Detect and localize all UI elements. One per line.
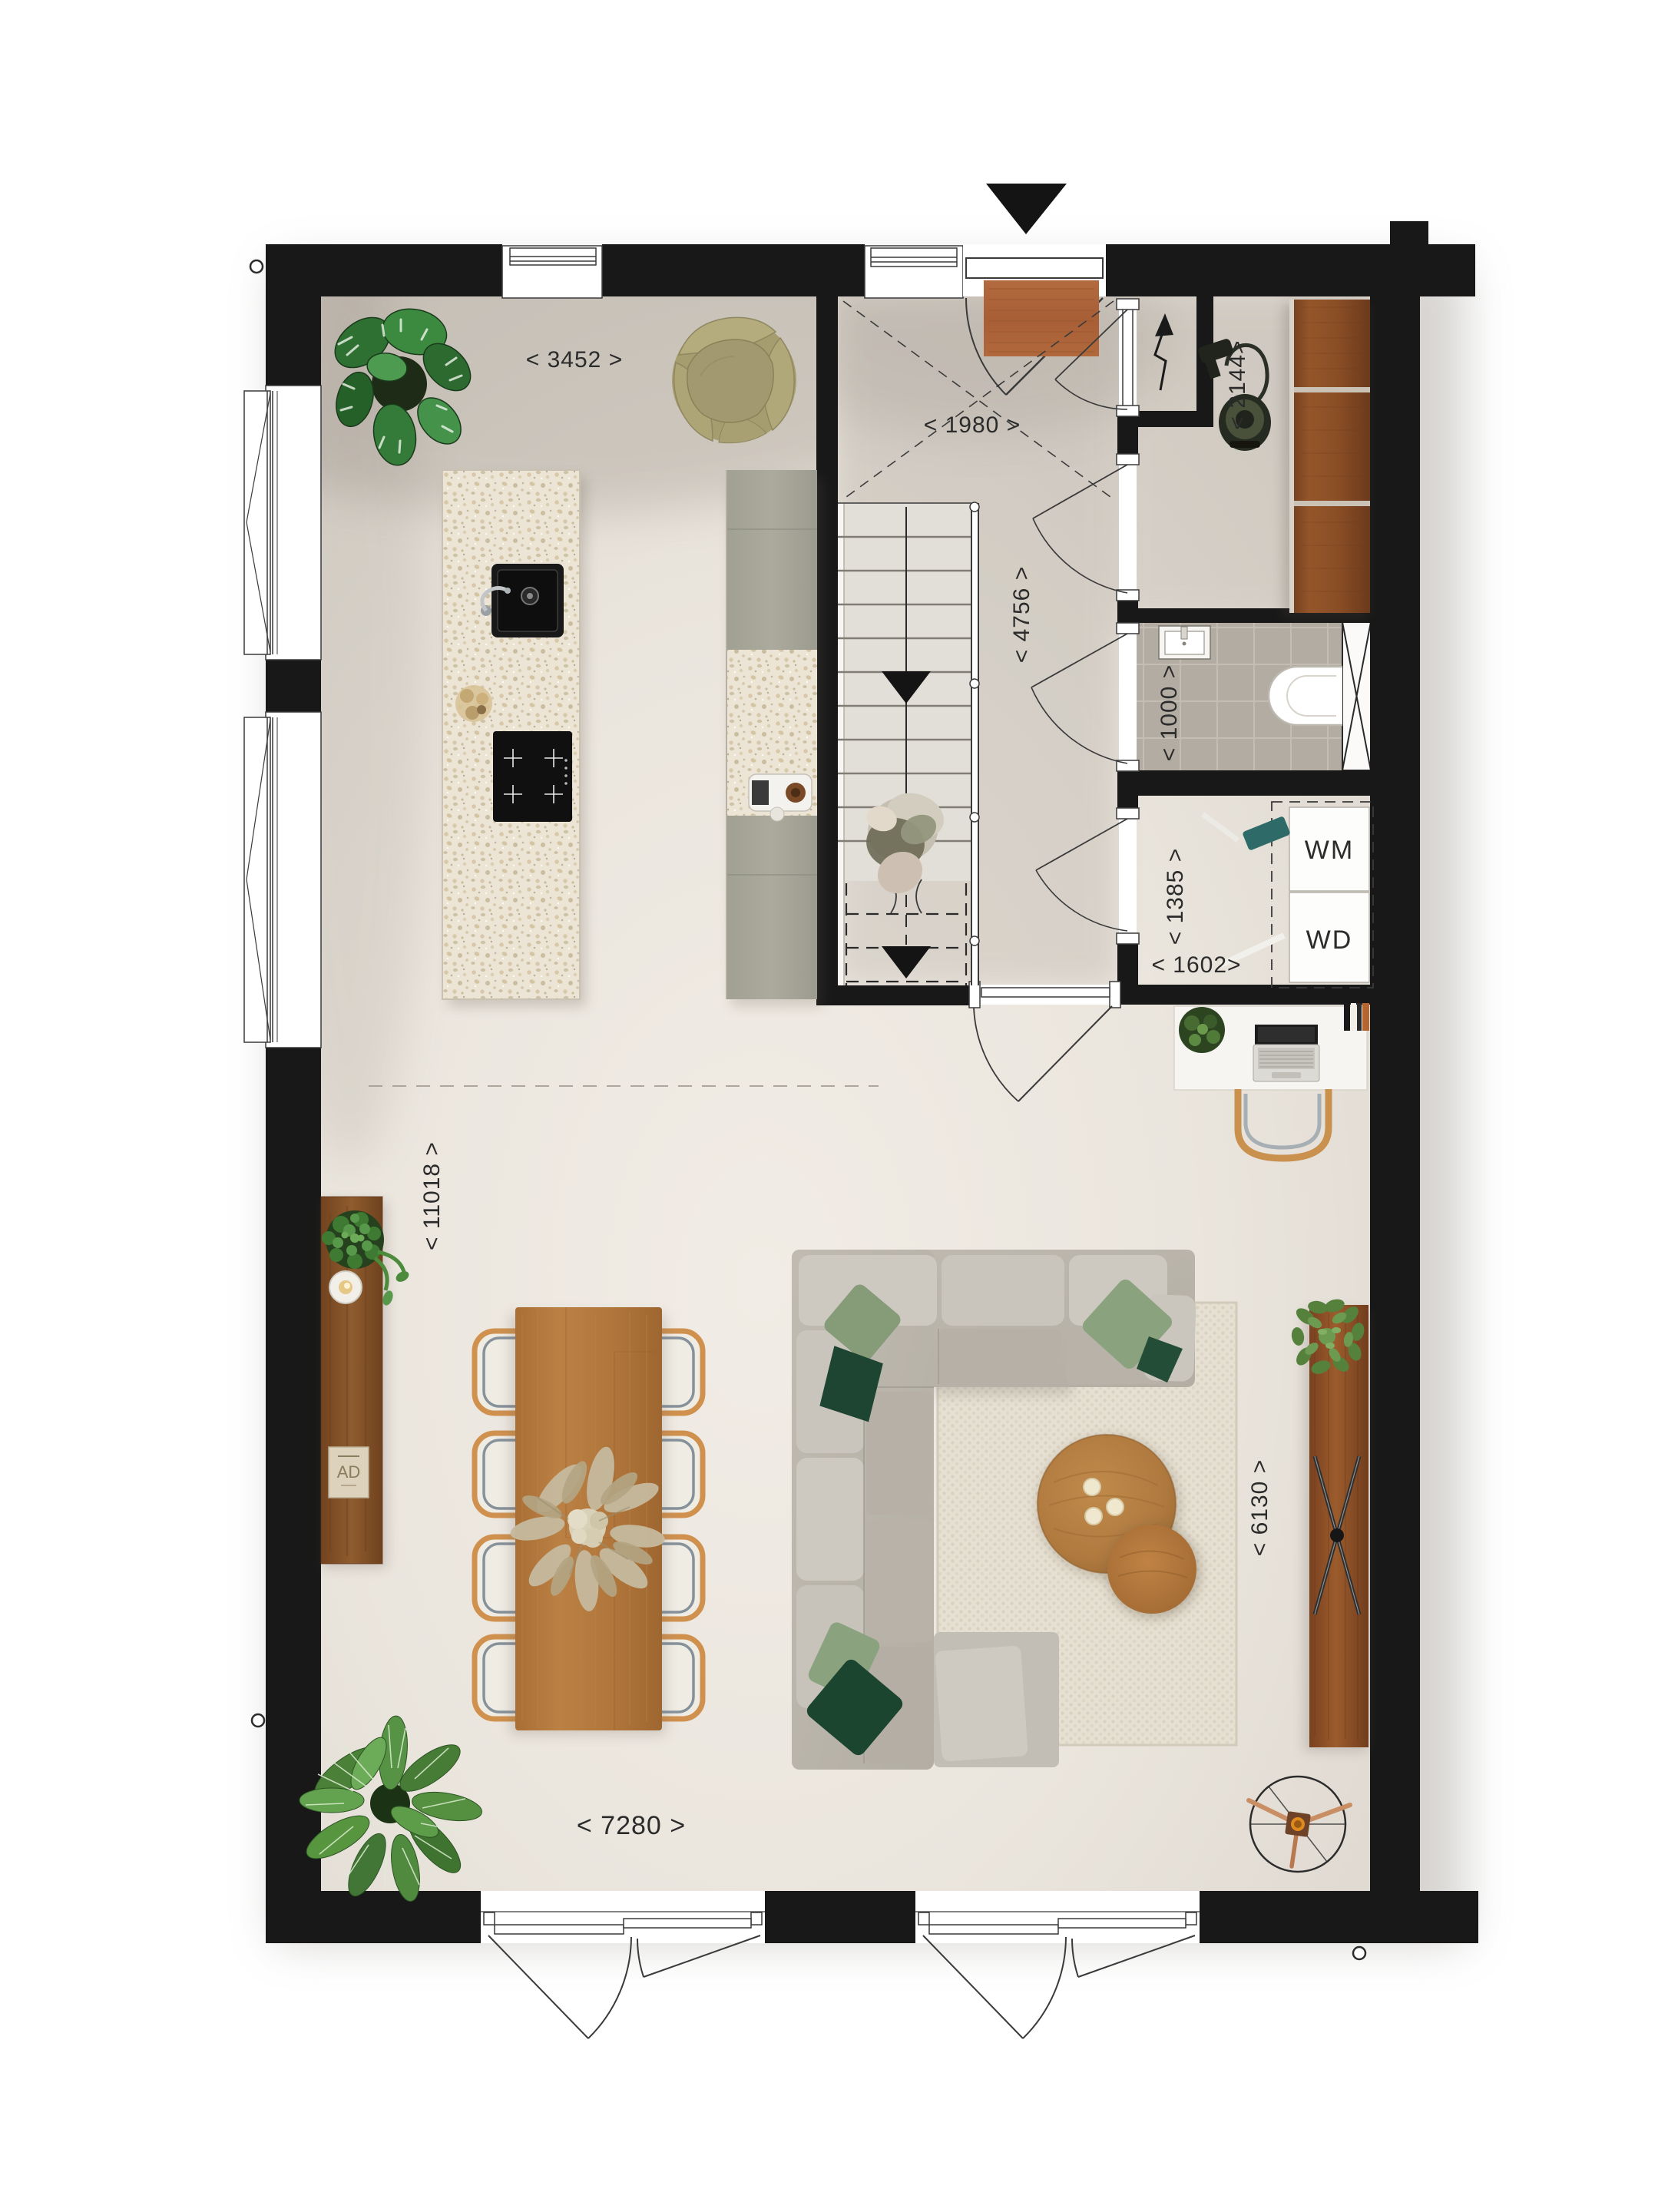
- svg-text:< 2144>: < 2144>: [1225, 339, 1250, 429]
- svg-text:< 1980 >: < 1980 >: [924, 412, 1021, 438]
- svg-text:< 1385 >: < 1385 >: [1163, 848, 1188, 945]
- svg-text:< 1602>: < 1602>: [1151, 952, 1241, 978]
- svg-text:< 6130 >: < 6130 >: [1247, 1459, 1273, 1556]
- svg-text:WM: WM: [1305, 836, 1354, 865]
- svg-text:< 11018 >: < 11018 >: [419, 1141, 445, 1250]
- svg-text:WD: WD: [1306, 926, 1353, 955]
- svg-text:< 3452 >: < 3452 >: [526, 347, 623, 373]
- svg-text:AD: AD: [337, 1462, 361, 1482]
- svg-text:< 1000 >: < 1000 >: [1157, 664, 1182, 761]
- svg-text:< 7280 >: < 7280 >: [577, 1811, 686, 1840]
- svg-text:< 4756 >: < 4756 >: [1009, 566, 1034, 663]
